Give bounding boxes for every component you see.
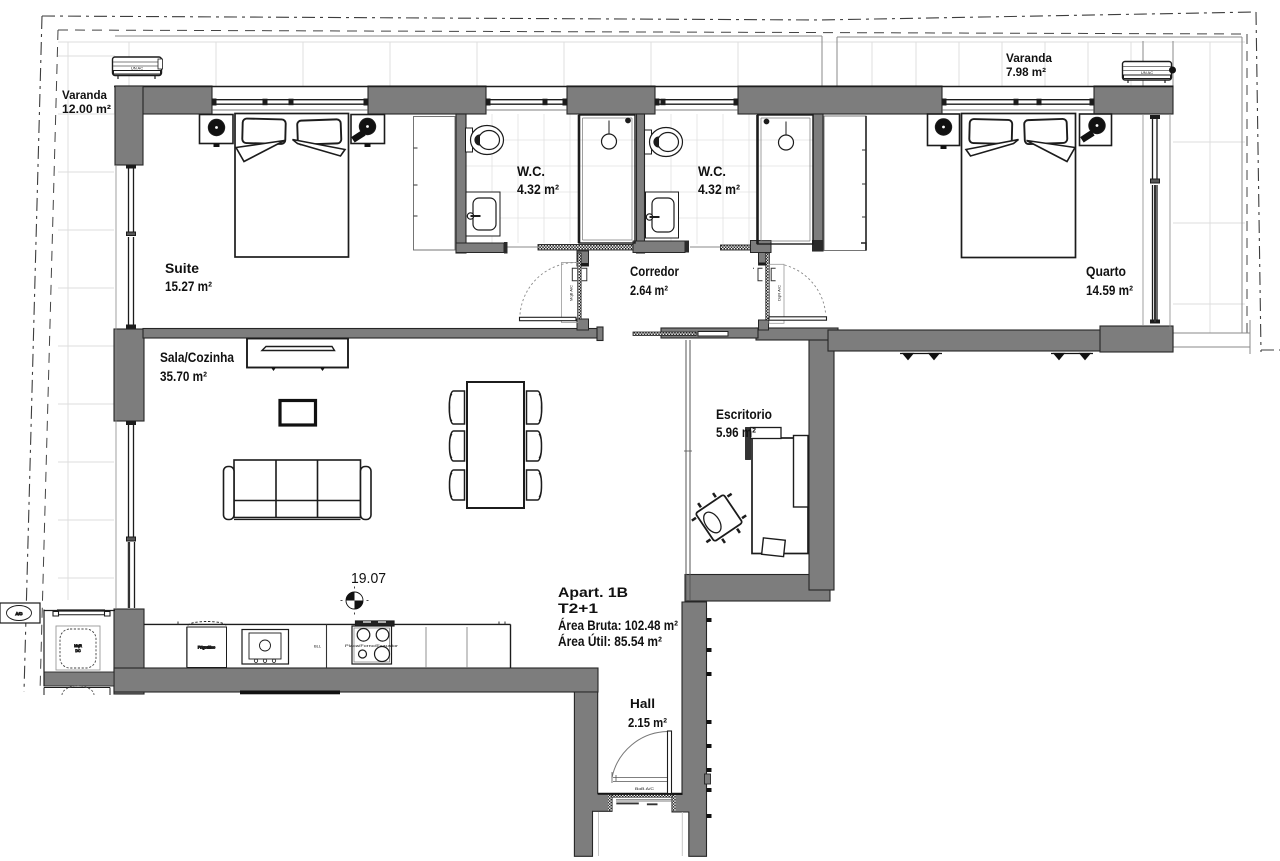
svg-text:W.C.: W.C. — [517, 163, 545, 179]
svg-text:5.96 m²: 5.96 m² — [716, 424, 756, 440]
svg-text:Corredor: Corredor — [630, 263, 679, 279]
svg-text:A/C: A/C — [16, 611, 23, 616]
svg-text:15.27 m²: 15.27 m² — [165, 278, 212, 294]
svg-text:Área Útil: 85.54 m²: Área Útil: 85.54 m² — [558, 634, 662, 649]
svg-text:12.00 m²: 12.00 m² — [62, 102, 111, 116]
svg-text:Sala/Cozinha: Sala/Cozinha — [160, 349, 234, 365]
svg-text:Quarto: Quarto — [1086, 263, 1126, 279]
svg-text:2.15 m²: 2.15 m² — [628, 715, 668, 730]
svg-text:T2+1: T2+1 — [558, 601, 599, 616]
svg-text:4.32 m²: 4.32 m² — [698, 181, 740, 197]
svg-text:7.98 m²: 7.98 m² — [1006, 65, 1046, 79]
svg-text:Varanda: Varanda — [1006, 51, 1052, 65]
svg-text:Área Bruta: 102.48 m²: Área Bruta: 102.48 m² — [558, 618, 678, 633]
svg-text:DqR A/C: DqR A/C — [778, 285, 782, 301]
svg-text:W.C.: W.C. — [698, 163, 726, 179]
svg-text:UN AC: UN AC — [1141, 70, 1153, 75]
svg-text:35.70 m²: 35.70 m² — [160, 368, 207, 384]
svg-text:MqR: MqR — [74, 644, 82, 648]
svg-text:Frigorifico: Frigorifico — [198, 645, 216, 650]
svg-text:4.32 m²: 4.32 m² — [517, 181, 559, 197]
svg-text:MqB A/C: MqB A/C — [570, 285, 574, 301]
svg-text:14.59 m²: 14.59 m² — [1086, 282, 1133, 298]
svg-text:DC: DC — [75, 649, 81, 653]
svg-text:2.64 m²: 2.64 m² — [630, 282, 668, 298]
svg-text:BoB A/C: BoB A/C — [635, 786, 654, 791]
svg-text:Placa/Forno/Exaustor: Placa/Forno/Exaustor — [345, 643, 399, 648]
svg-text:Varanda: Varanda — [62, 88, 107, 102]
svg-text:Hall: Hall — [630, 696, 655, 711]
svg-text:19.07: 19.07 — [351, 570, 386, 587]
svg-text:BLL: BLL — [314, 644, 322, 649]
svg-text:UN AC: UN AC — [131, 66, 143, 71]
svg-text:Suite: Suite — [165, 260, 199, 276]
svg-text:Apart. 1B: Apart. 1B — [558, 585, 628, 600]
svg-text:Escritorio: Escritorio — [716, 406, 772, 422]
